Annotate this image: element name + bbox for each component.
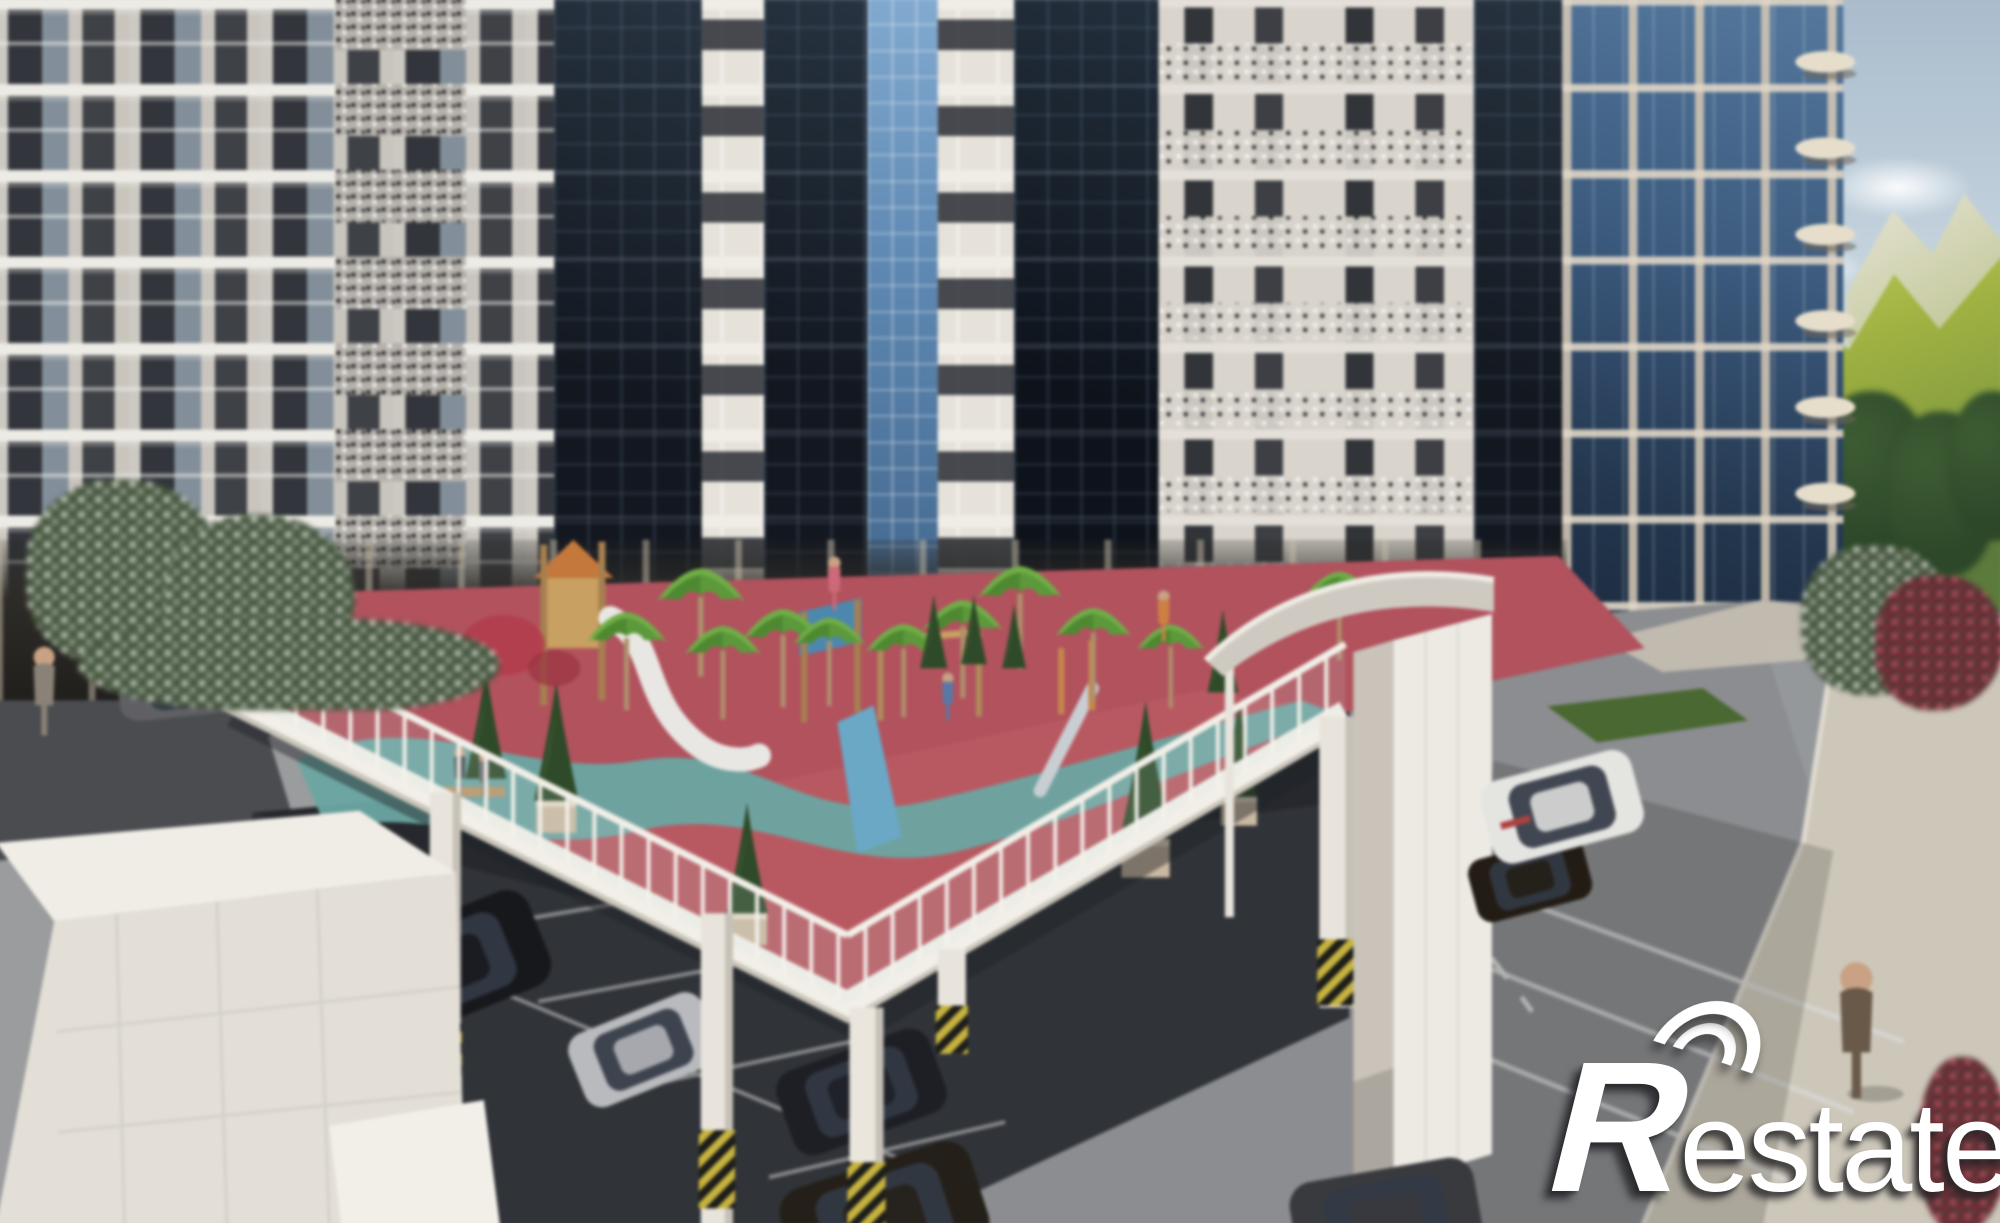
render-screenshot: R estate <box>0 0 2000 1223</box>
red-flower-bush <box>1875 575 2000 711</box>
red-flower-bush-on-deck <box>528 650 580 686</box>
parking-entrance-building <box>0 811 500 1223</box>
white-flower-hedge <box>78 618 500 710</box>
brand-watermark: R estate <box>1555 1035 2000 1221</box>
